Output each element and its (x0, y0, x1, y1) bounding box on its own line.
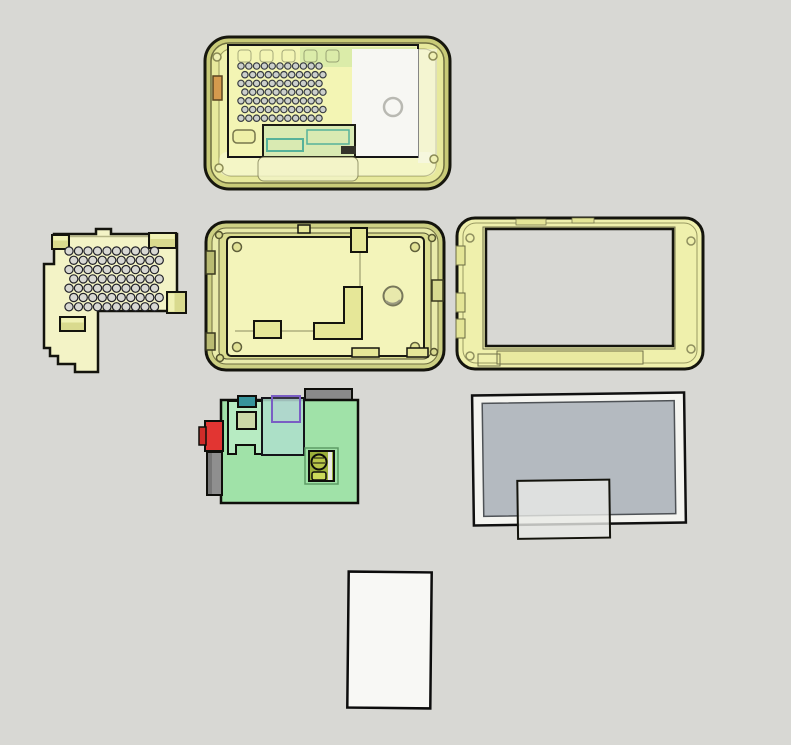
vent-hole (131, 303, 139, 311)
vent-hole (117, 275, 125, 283)
plate-clip-tab (167, 292, 186, 313)
olive-chip (237, 412, 256, 429)
vent-hole (238, 80, 244, 86)
vent-hole (285, 98, 291, 104)
vent-hole (316, 80, 322, 86)
vent-hole (257, 106, 263, 112)
vent-hole (112, 303, 120, 311)
vent-hole (141, 303, 149, 311)
vent-hole (84, 247, 92, 255)
vent-hole (93, 247, 101, 255)
vent-hole (292, 63, 298, 69)
vent-hole (65, 266, 73, 274)
vent-hole (292, 115, 298, 121)
vent-hole (155, 293, 163, 301)
vent-hole (89, 293, 97, 301)
vent-hole (281, 89, 287, 95)
vent-hole (253, 115, 259, 121)
sd-card-through-case (213, 76, 222, 100)
vent-hole (98, 275, 106, 283)
vent-hole (65, 247, 73, 255)
white-card-edge-through-case (418, 49, 437, 163)
vent-hole (316, 63, 322, 69)
vent-hole (103, 303, 111, 311)
vent-hole (246, 80, 252, 86)
vent-hole (273, 89, 279, 95)
vent-hole (84, 284, 92, 292)
vent-hole (150, 247, 158, 255)
vent-hole (155, 275, 163, 283)
vent-hole (98, 256, 106, 264)
vent-hole (273, 72, 279, 78)
vent-hole (242, 106, 248, 112)
bezel-side-notch (456, 246, 465, 265)
vent-hole (320, 89, 326, 95)
teal-chip (238, 396, 256, 407)
part-blank-card[interactable] (347, 572, 431, 709)
tray-top-tab (351, 228, 367, 252)
vent-hole (308, 63, 314, 69)
vent-hole (89, 275, 97, 283)
vent-hole (277, 63, 283, 69)
vent-hole (93, 266, 101, 274)
vent-hole (246, 115, 252, 121)
tray-rim-screw (217, 355, 224, 362)
vent-hole (308, 98, 314, 104)
vent-hole (320, 72, 326, 78)
vent-hole (250, 89, 256, 95)
vent-hole (300, 63, 306, 69)
tab-top-face (62, 318, 84, 323)
tray-bottom-tab (407, 348, 428, 357)
vent-hole (112, 266, 120, 274)
vent-hole (304, 72, 310, 78)
vent-hole (127, 256, 135, 264)
tray-corner-boss (411, 243, 420, 252)
bezel-window (486, 229, 673, 346)
tray-rim-screw (429, 235, 436, 242)
vent-hole (79, 275, 87, 283)
vent-hole (277, 80, 283, 86)
vent-hole (265, 72, 271, 78)
vent-hole (277, 98, 283, 104)
vent-hole (281, 72, 287, 78)
vent-hole (242, 72, 248, 78)
part-vent-plate[interactable] (44, 229, 186, 372)
rca-jack (205, 421, 223, 451)
part-case-tray[interactable] (206, 222, 444, 370)
vent-hole (70, 293, 78, 301)
vent-hole (292, 80, 298, 86)
vent-hole (84, 266, 92, 274)
vent-hole (296, 89, 302, 95)
vent-hole (277, 115, 283, 121)
screw-boss (213, 53, 221, 61)
vent-hole (122, 303, 130, 311)
vent-hole (242, 89, 248, 95)
tray-rim-screw (216, 232, 223, 239)
vent-hole (250, 106, 256, 112)
vent-hole (304, 106, 310, 112)
vent-hole (93, 303, 101, 311)
vent-hole (74, 247, 82, 255)
bezel-side-notch (456, 293, 465, 312)
vent-hole (136, 275, 144, 283)
component-stripe (328, 452, 332, 480)
vent-hole (250, 72, 256, 78)
tray-rim-screw (431, 349, 438, 356)
bezel-top-detail (516, 219, 546, 225)
vent-hole (289, 89, 295, 95)
accent-outline-box (272, 396, 300, 422)
vent-hole (257, 72, 263, 78)
vent-hole (136, 256, 144, 264)
part-front-bezel[interactable] (456, 218, 703, 369)
blank-card-body (347, 572, 431, 709)
part-pcb[interactable] (199, 389, 358, 503)
rca-jack-tip (199, 427, 206, 445)
vent-hole (150, 284, 158, 292)
vent-hole (265, 106, 271, 112)
bezel-side-notch (456, 319, 465, 338)
vent-hole (146, 275, 154, 283)
vent-hole (108, 293, 116, 301)
screw-boss (215, 164, 223, 172)
vent-hole (238, 115, 244, 121)
tray-corner-boss (233, 243, 242, 252)
tray-corner-boss (233, 343, 242, 352)
vent-hole (300, 98, 306, 104)
vent-hole (261, 63, 267, 69)
vent-hole (131, 247, 139, 255)
vent-hole (285, 80, 291, 86)
vent-hole (74, 303, 82, 311)
vent-hole (285, 63, 291, 69)
vent-hole (312, 72, 318, 78)
vent-hole (269, 80, 275, 86)
tab-side-face (169, 294, 175, 312)
vent-hole (296, 72, 302, 78)
vent-hole (281, 106, 287, 112)
tray-right-tab (432, 280, 443, 301)
plate-clip-tab (149, 233, 176, 248)
vent-hole (103, 247, 111, 255)
vent-hole (308, 80, 314, 86)
vent-hole (127, 275, 135, 283)
vent-hole (261, 80, 267, 86)
vent-hole (292, 98, 298, 104)
vent-hole (70, 275, 78, 283)
vent-hole (131, 284, 139, 292)
vent-hole (316, 98, 322, 104)
lcd-driver-flex (517, 480, 610, 539)
vent-hole (141, 266, 149, 274)
component-barrel-cap (312, 455, 327, 470)
vent-hole (122, 247, 130, 255)
vent-hole (141, 247, 149, 255)
vent-hole (269, 98, 275, 104)
part-lcd-panel[interactable] (472, 393, 686, 540)
vent-hole (269, 63, 275, 69)
vent-hole (103, 266, 111, 274)
vent-hole (316, 115, 322, 121)
vent-hole (150, 266, 158, 274)
cad-viewport[interactable] (0, 0, 791, 745)
vent-hole (112, 247, 120, 255)
vent-hole (89, 256, 97, 264)
vent-hole (93, 284, 101, 292)
vent-hole (103, 284, 111, 292)
vent-hole (261, 98, 267, 104)
vent-hole (98, 293, 106, 301)
vent-hole (136, 293, 144, 301)
vent-hole (261, 115, 267, 121)
case-bottom-tongue (258, 157, 358, 181)
vent-hole (84, 303, 92, 311)
vent-hole (265, 89, 271, 95)
screw-boss (430, 155, 438, 163)
vent-hole (246, 98, 252, 104)
tray-side-port (206, 333, 215, 350)
vent-hole (117, 256, 125, 264)
vent-hole (117, 293, 125, 301)
vent-hole (289, 72, 295, 78)
vent-hole (238, 98, 244, 104)
vent-hole (108, 275, 116, 283)
vent-hole (74, 284, 82, 292)
vent-hole (246, 63, 252, 69)
vent-hole (150, 303, 158, 311)
vent-hole (79, 293, 87, 301)
vent-hole (289, 106, 295, 112)
vent-hole (108, 256, 116, 264)
tray-bottom-tab (352, 348, 379, 357)
part-assembled-case[interactable] (205, 37, 450, 189)
screw-boss (429, 52, 437, 60)
vent-hole (312, 89, 318, 95)
vent-hole (320, 106, 326, 112)
vent-hole (304, 89, 310, 95)
vent-hole (253, 98, 259, 104)
vent-hole (257, 89, 263, 95)
connector-through-case (341, 146, 356, 154)
vent-hole (122, 266, 130, 274)
vent-hole (127, 293, 135, 301)
vent-hole (253, 63, 259, 69)
vent-hole (312, 106, 318, 112)
vent-hole (146, 256, 154, 264)
tray-standoff-block (254, 321, 281, 338)
vent-hole (308, 115, 314, 121)
usb-port-shade (208, 453, 212, 494)
vent-hole (141, 284, 149, 292)
case-button-recess (233, 130, 255, 143)
vent-hole (65, 284, 73, 292)
tray-side-port (206, 251, 215, 274)
component-pad (312, 472, 326, 480)
vent-hole (112, 284, 120, 292)
vent-hole (300, 115, 306, 121)
vent-hole (273, 106, 279, 112)
vent-hole (65, 303, 73, 311)
vent-hole (269, 115, 275, 121)
vent-hole (285, 115, 291, 121)
bezel-top-detail (572, 218, 594, 223)
vent-hole (296, 106, 302, 112)
tab-top-face (54, 236, 68, 241)
vent-hole (238, 63, 244, 69)
vent-hole (253, 80, 259, 86)
tab-top-face (151, 234, 175, 239)
vent-hole (155, 256, 163, 264)
plate-clip-tab (52, 235, 69, 249)
bezel-bottom-recess (497, 351, 643, 364)
vent-hole (122, 284, 130, 292)
vent-hole (74, 266, 82, 274)
tray-top-bump (298, 225, 310, 233)
vent-hole (146, 293, 154, 301)
plate-clip-tab (60, 317, 85, 331)
vent-hole (79, 256, 87, 264)
vent-hole (300, 80, 306, 86)
vent-hole (70, 256, 78, 264)
vent-hole (131, 266, 139, 274)
